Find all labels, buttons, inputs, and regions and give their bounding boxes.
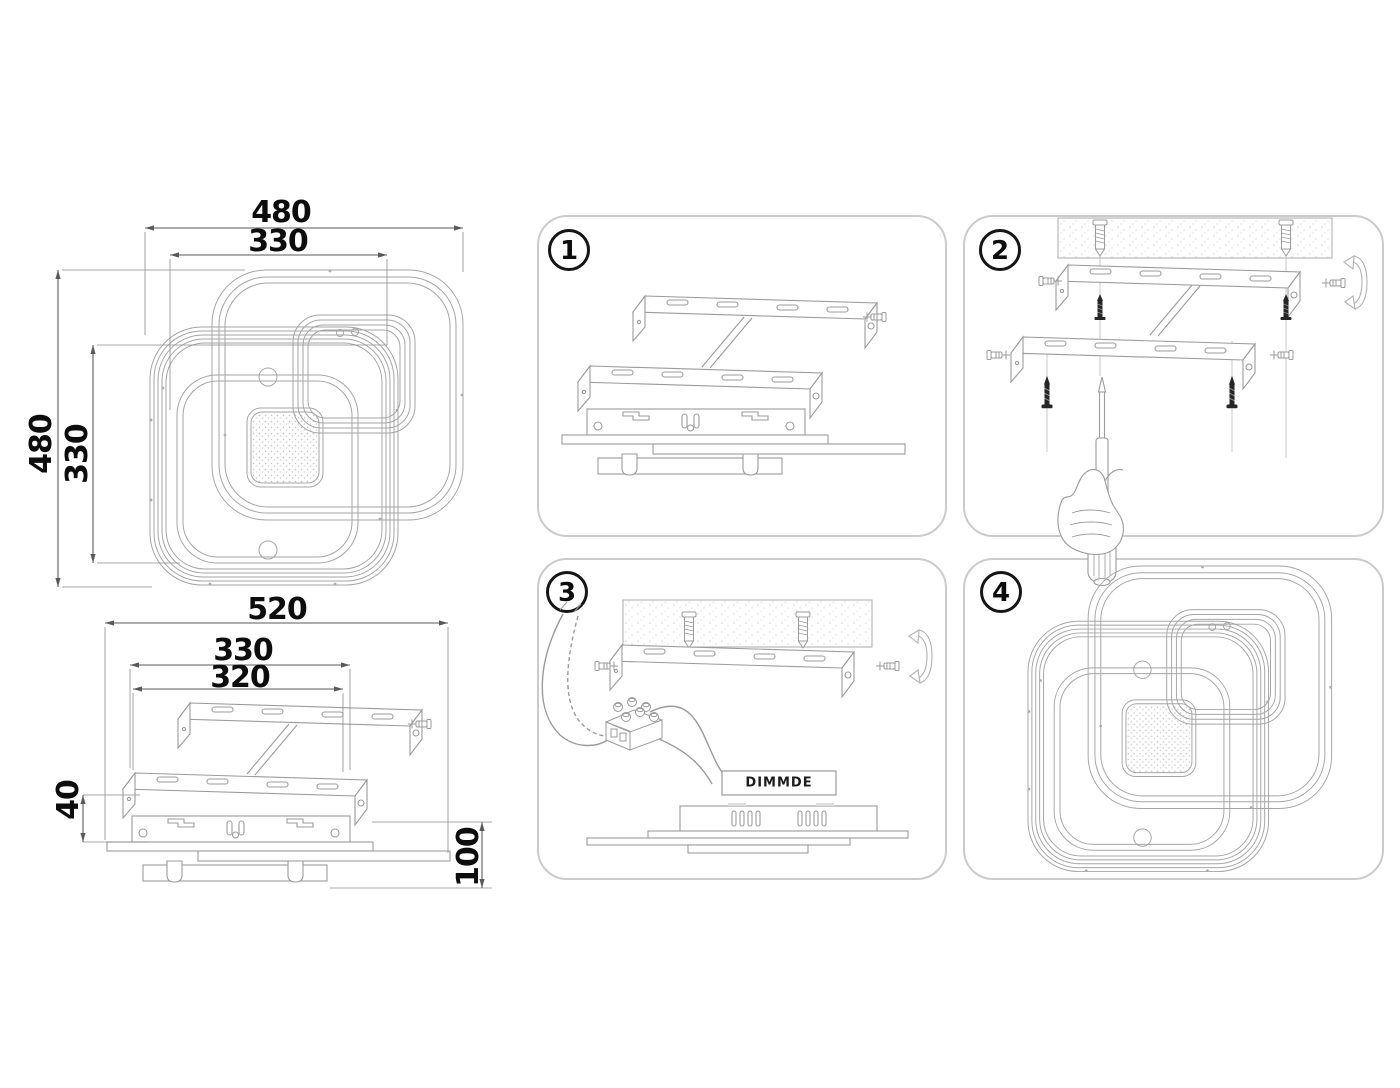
step-4-number: 4 <box>992 580 1010 606</box>
dim-side-height-total: 100 <box>454 827 484 887</box>
step-1-number: 1 <box>560 238 578 264</box>
dim-side-height-bracket: 40 <box>54 780 84 820</box>
step-2-panel <box>963 215 1384 537</box>
step-2-number: 2 <box>991 238 1009 264</box>
step-4-panel <box>963 558 1384 880</box>
dim-top-width-inner: 330 <box>248 227 308 257</box>
top-view-drawing <box>55 225 463 587</box>
line-art-canvas <box>0 0 1400 1088</box>
driver-label: DIMMDE <box>745 777 812 790</box>
dim-top-height-inner: 330 <box>63 424 93 484</box>
step-3-panel <box>537 558 947 880</box>
installation-instruction-sheet: 480 330 480 330 520 330 320 40 100 1 2 3… <box>0 0 1400 1088</box>
step-1-panel <box>537 215 947 537</box>
dim-side-width-total: 520 <box>247 595 307 625</box>
side-view-drawing <box>80 620 492 888</box>
dim-side-width-slots: 320 <box>210 663 270 693</box>
step-3-number: 3 <box>558 580 576 606</box>
dim-top-height-outer: 480 <box>27 414 57 474</box>
